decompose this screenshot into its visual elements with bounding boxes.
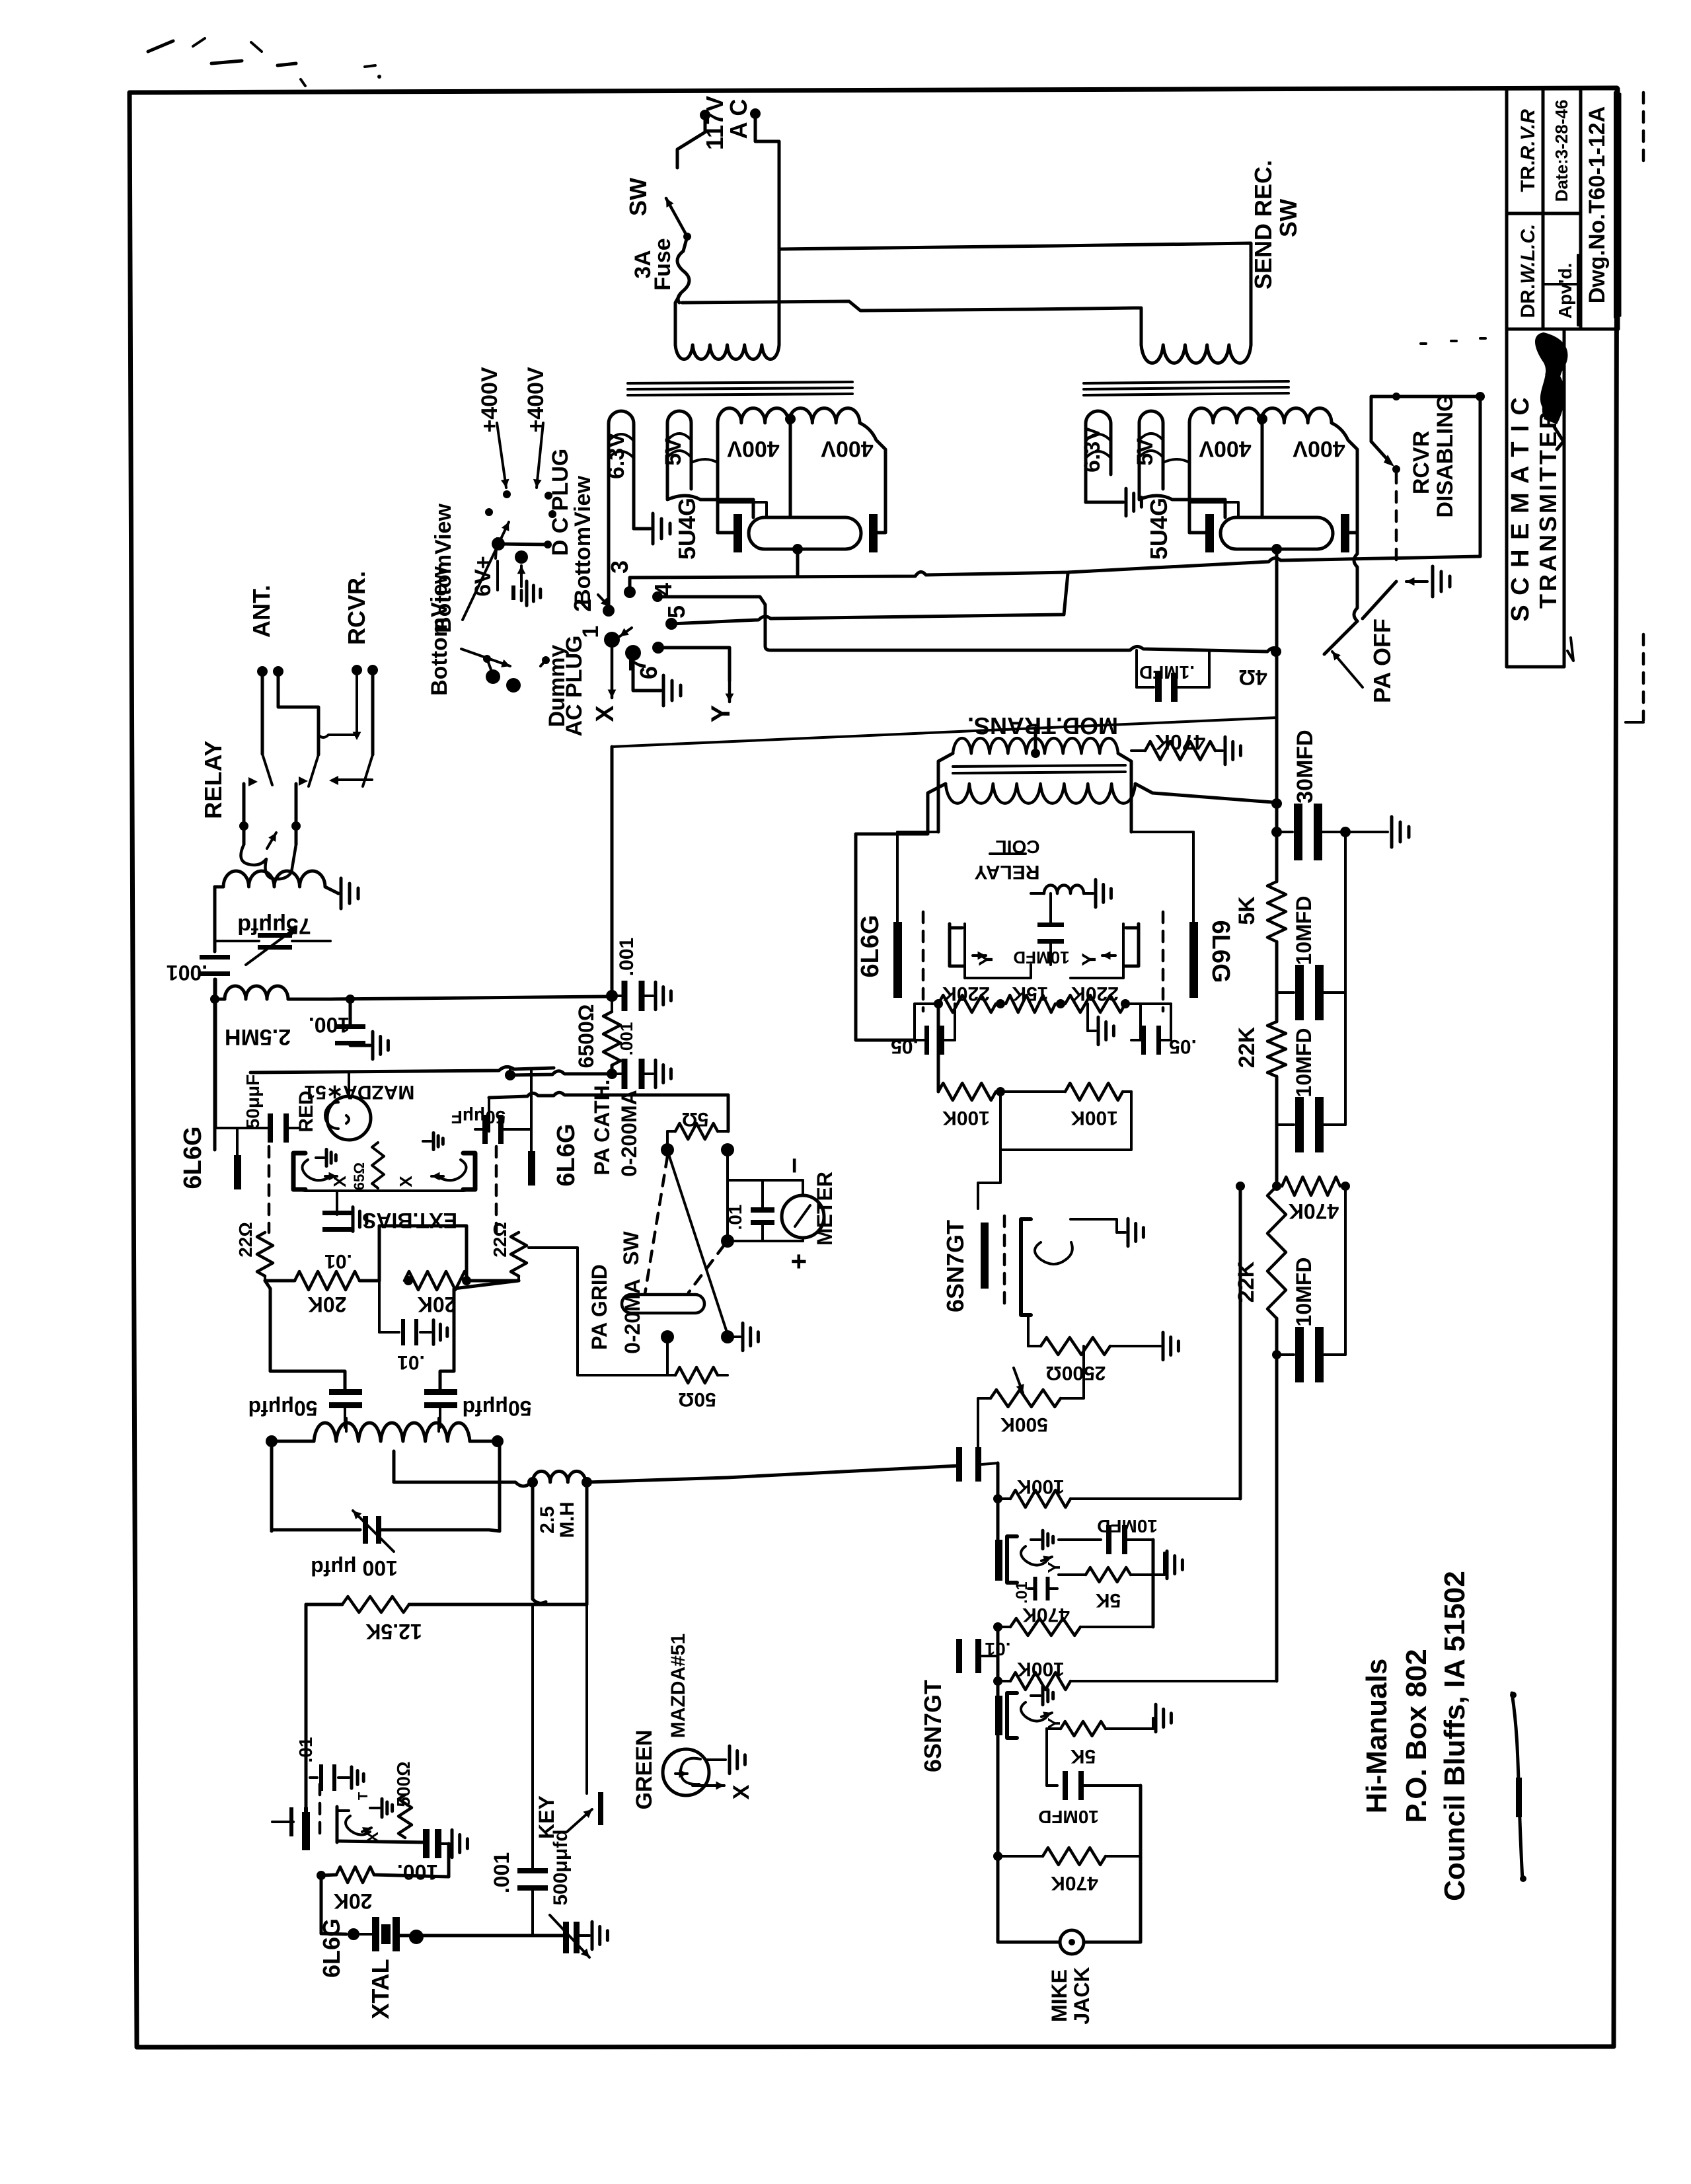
svg-text:DISABLING: DISABLING [1433,395,1458,518]
svg-text:SW: SW [1275,199,1302,237]
svg-text:.001: .001 [617,1022,636,1056]
svg-text:100K: 100K [1017,1658,1065,1680]
svg-text:4: 4 [650,583,677,596]
svg-text:MAZDA#51: MAZDA#51 [667,1634,689,1738]
svg-text:TR.R.V.R: TR.R.V.R [1517,109,1539,192]
svg-text:20K: 20K [334,1889,373,1913]
svg-text:6.3V: 6.3V [604,433,629,479]
svg-text:XTAL: XTAL [367,1959,394,2019]
svg-text:X: X [330,1176,350,1187]
svg-text:.01: .01 [397,1351,425,1373]
svg-text:4Ω: 4Ω [1238,665,1267,689]
svg-text:Apv'd.: Apv'd. [1555,263,1575,319]
svg-text:470K: 470K [1155,730,1206,754]
svg-text:PA OFF: PA OFF [1369,619,1396,703]
svg-text:22Ω: 22Ω [235,1222,256,1258]
svg-text:5Ω: 5Ω [682,1108,709,1130]
svg-text:7: 7 [624,658,651,671]
svg-text:10MFD: 10MFD [1292,1028,1316,1098]
svg-text:6500Ω: 6500Ω [574,1004,598,1069]
svg-text:30MFD: 30MFD [1293,730,1318,803]
svg-text:20K: 20K [418,1293,457,1316]
svg-text:Y: Y [975,953,997,966]
svg-text:0-200MA: 0-200MA [617,1090,641,1177]
svg-text:5: 5 [663,605,690,619]
svg-text:Fuse: Fuse [650,238,675,290]
svg-text:Y: Y [1078,953,1100,966]
svg-text:500K: 500K [1000,1413,1048,1435]
svg-text:12.5K: 12.5K [365,1620,422,1643]
svg-text:50μμF: 50μμF [451,1107,506,1127]
svg-text:220K: 220K [942,983,990,1004]
svg-text:220K: 220K [1071,983,1119,1004]
svg-text:6L6G: 6L6G [179,1126,207,1189]
svg-text:10MFD: 10MFD [1038,1807,1099,1827]
svg-text:100K: 100K [1017,1476,1065,1497]
svg-text:.001: .001 [490,1852,513,1893]
svg-text:.01: .01 [295,1737,316,1763]
svg-text:10MFD: 10MFD [1292,896,1316,965]
svg-text:22Ω: 22Ω [490,1222,510,1258]
svg-text:RCVR: RCVR [1409,431,1434,494]
svg-text:22K: 22K [1234,1026,1259,1068]
svg-text:SW: SW [619,1230,643,1265]
svg-text:Council Bluffs, IA 51502: Council Bluffs, IA 51502 [1439,1571,1471,1901]
svg-text:.001: .001 [616,938,638,976]
svg-text:6SN7GT: 6SN7GT [919,1680,946,1772]
svg-text:2.5MH: 2.5MH [225,1024,291,1049]
svg-text:2.5: 2.5 [537,1506,558,1534]
svg-text:X: X [729,1784,754,1799]
svg-text:P.O. Box 802: P.O. Box 802 [1400,1649,1433,1823]
svg-text:470K: 470K [1022,1604,1070,1626]
svg-text:5V: 5V [661,438,686,466]
svg-text:50μμF: 50μμF [243,1074,263,1129]
svg-text:100.: 100. [309,1013,350,1037]
svg-text:500Ω: 500Ω [393,1761,414,1807]
svg-text:METER: METER [813,1172,837,1246]
svg-text:5U4G: 5U4G [1145,498,1172,560]
svg-text:SW: SW [624,178,652,216]
svg-text:ANT.: ANT. [248,585,275,638]
svg-text:BottomView: BottomView [427,566,452,696]
svg-text:X: X [396,1176,416,1187]
svg-text:50μμfd: 50μμfd [248,1396,318,1420]
svg-text:10MFD: 10MFD [1292,1258,1316,1327]
svg-text:T: T [356,1792,371,1800]
svg-text:Y: Y [706,704,735,722]
svg-text:SEND REC.: SEND REC. [1250,160,1277,289]
svg-text:RCVR.: RCVR. [343,571,370,645]
svg-text:S C H E M A T I C: S C H E M A T I C [1507,396,1534,622]
svg-text:Date:3-28-46: Date:3-28-46 [1552,100,1571,202]
svg-text:50μμfd: 50μμfd [463,1396,532,1420]
svg-text:6L6G: 6L6G [552,1123,580,1186]
svg-text:AC PLUG: AC PLUG [562,636,587,737]
svg-text:470K: 470K [1051,1872,1098,1894]
svg-text:DR.W.L.C.: DR.W.L.C. [1517,224,1539,319]
svg-text:.01: .01 [324,1250,352,1272]
svg-text:6SN7GT: 6SN7GT [942,1220,969,1312]
svg-text:0-20MA: 0-20MA [620,1279,644,1354]
svg-text:6.3V: 6.3V [1080,426,1105,472]
svg-text:EXT.BIAS: EXT.BIAS [362,1209,457,1232]
svg-text:100K: 100K [1071,1107,1118,1129]
svg-text:5U4G: 5U4G [673,498,700,560]
svg-text:TRANSMITTER: TRANSMITTER [1534,409,1561,609]
svg-text:RELAY: RELAY [975,861,1040,883]
svg-text:+400V: +400V [523,367,548,433]
svg-text:50Ω: 50Ω [678,1388,716,1410]
svg-text:400V: 400V [821,436,874,461]
svg-text:M.H: M.H [556,1502,578,1538]
svg-text:BottomView: BottomView [570,476,595,605]
svg-text:22K: 22K [1234,1261,1259,1302]
svg-text:X: X [591,705,619,722]
svg-text:Dwg.No.T60-1-12A: Dwg.No.T60-1-12A [1585,106,1610,304]
svg-text:400V: 400V [1199,436,1252,461]
svg-text:6V+: 6V+ [470,556,496,596]
svg-text:.05: .05 [1169,1036,1197,1057]
svg-text:5K: 5K [1234,896,1259,925]
svg-text:Hi-Manuals: Hi-Manuals [1361,1659,1393,1814]
svg-text:Y: Y [1044,1562,1064,1573]
svg-text:MIKE: MIKE [1047,1969,1071,2022]
svg-text:.001: .001 [167,961,207,985]
svg-text:65Ω: 65Ω [351,1162,367,1190]
svg-text:+400V: +400V [477,367,502,433]
svg-text:6L6G: 6L6G [1207,920,1234,983]
svg-text:D C PLUG: D C PLUG [548,449,573,556]
svg-text:470K: 470K [1289,1199,1339,1223]
svg-text:400V: 400V [727,436,780,461]
svg-text:500μμfd: 500μμfd [550,1829,572,1905]
svg-text:JACK: JACK [1070,1967,1094,2024]
svg-text:5K: 5K [1095,1589,1121,1611]
svg-text:400V: 400V [1293,436,1345,461]
svg-text:GREEN: GREEN [632,1730,657,1810]
svg-text:10MFD: 10MFD [1013,948,1069,967]
svg-text:100K: 100K [942,1107,990,1129]
svg-text:15K: 15K [1012,983,1048,1004]
svg-text:+: + [783,1254,814,1270]
svg-text:MAZDA∗51: MAZDA∗51 [305,1081,415,1103]
svg-text:10MFD: 10MFD [1097,1516,1158,1536]
svg-text:.01: .01 [725,1205,745,1230]
svg-text:2500Ω: 2500Ω [1046,1362,1106,1384]
svg-text:.1MFD: .1MFD [1139,662,1195,683]
svg-text:.01: .01 [1013,1581,1031,1603]
svg-text:100.: 100. [397,1860,438,1884]
svg-text:100 μμfd: 100 μμfd [311,1556,398,1580]
svg-text:3: 3 [606,560,633,574]
svg-text:PA GRID: PA GRID [587,1264,611,1350]
svg-text:20K: 20K [308,1293,347,1316]
svg-text:5K: 5K [1070,1745,1096,1767]
svg-text:RELAY: RELAY [200,741,227,819]
svg-text:6L6G: 6L6G [856,915,884,977]
svg-text:−: − [778,1158,809,1174]
svg-text:A C: A C [725,99,752,139]
svg-text:5V: 5V [1133,438,1158,466]
